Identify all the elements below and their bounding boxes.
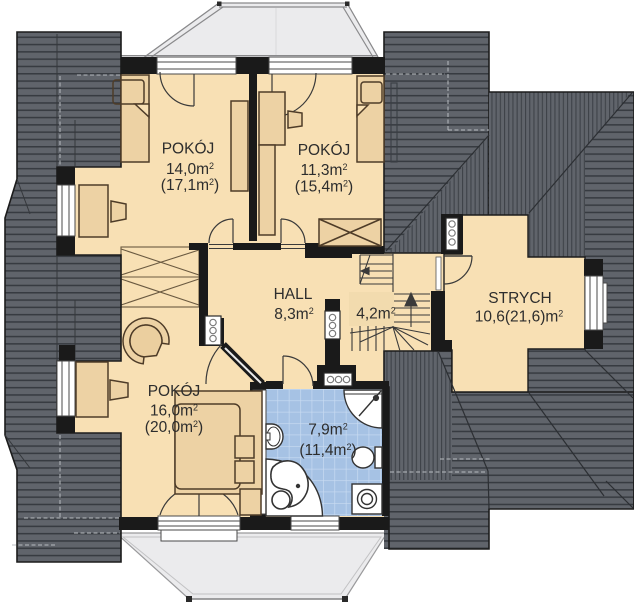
svg-text:4,2m2: 4,2m2 [356,306,395,323]
svg-text:STRYCH: STRYCH [488,290,551,307]
svg-text:POKÓJ: POKÓJ [298,142,351,159]
svg-text:POKÓJ: POKÓJ [162,141,215,158]
svg-text:14,0m2: 14,0m2 [166,161,214,178]
svg-text:11,3m2: 11,3m2 [301,162,348,179]
svg-text:7,9m2: 7,9m2 [308,422,347,439]
svg-text:10,6(21,6)m2: 10,6(21,6)m2 [475,309,564,326]
svg-text:8,3m2: 8,3m2 [274,306,313,323]
svg-text:POKÓJ: POKÓJ [148,383,201,400]
svg-text:HALL: HALL [274,286,313,303]
svg-text:16,0m2: 16,0m2 [150,403,198,420]
